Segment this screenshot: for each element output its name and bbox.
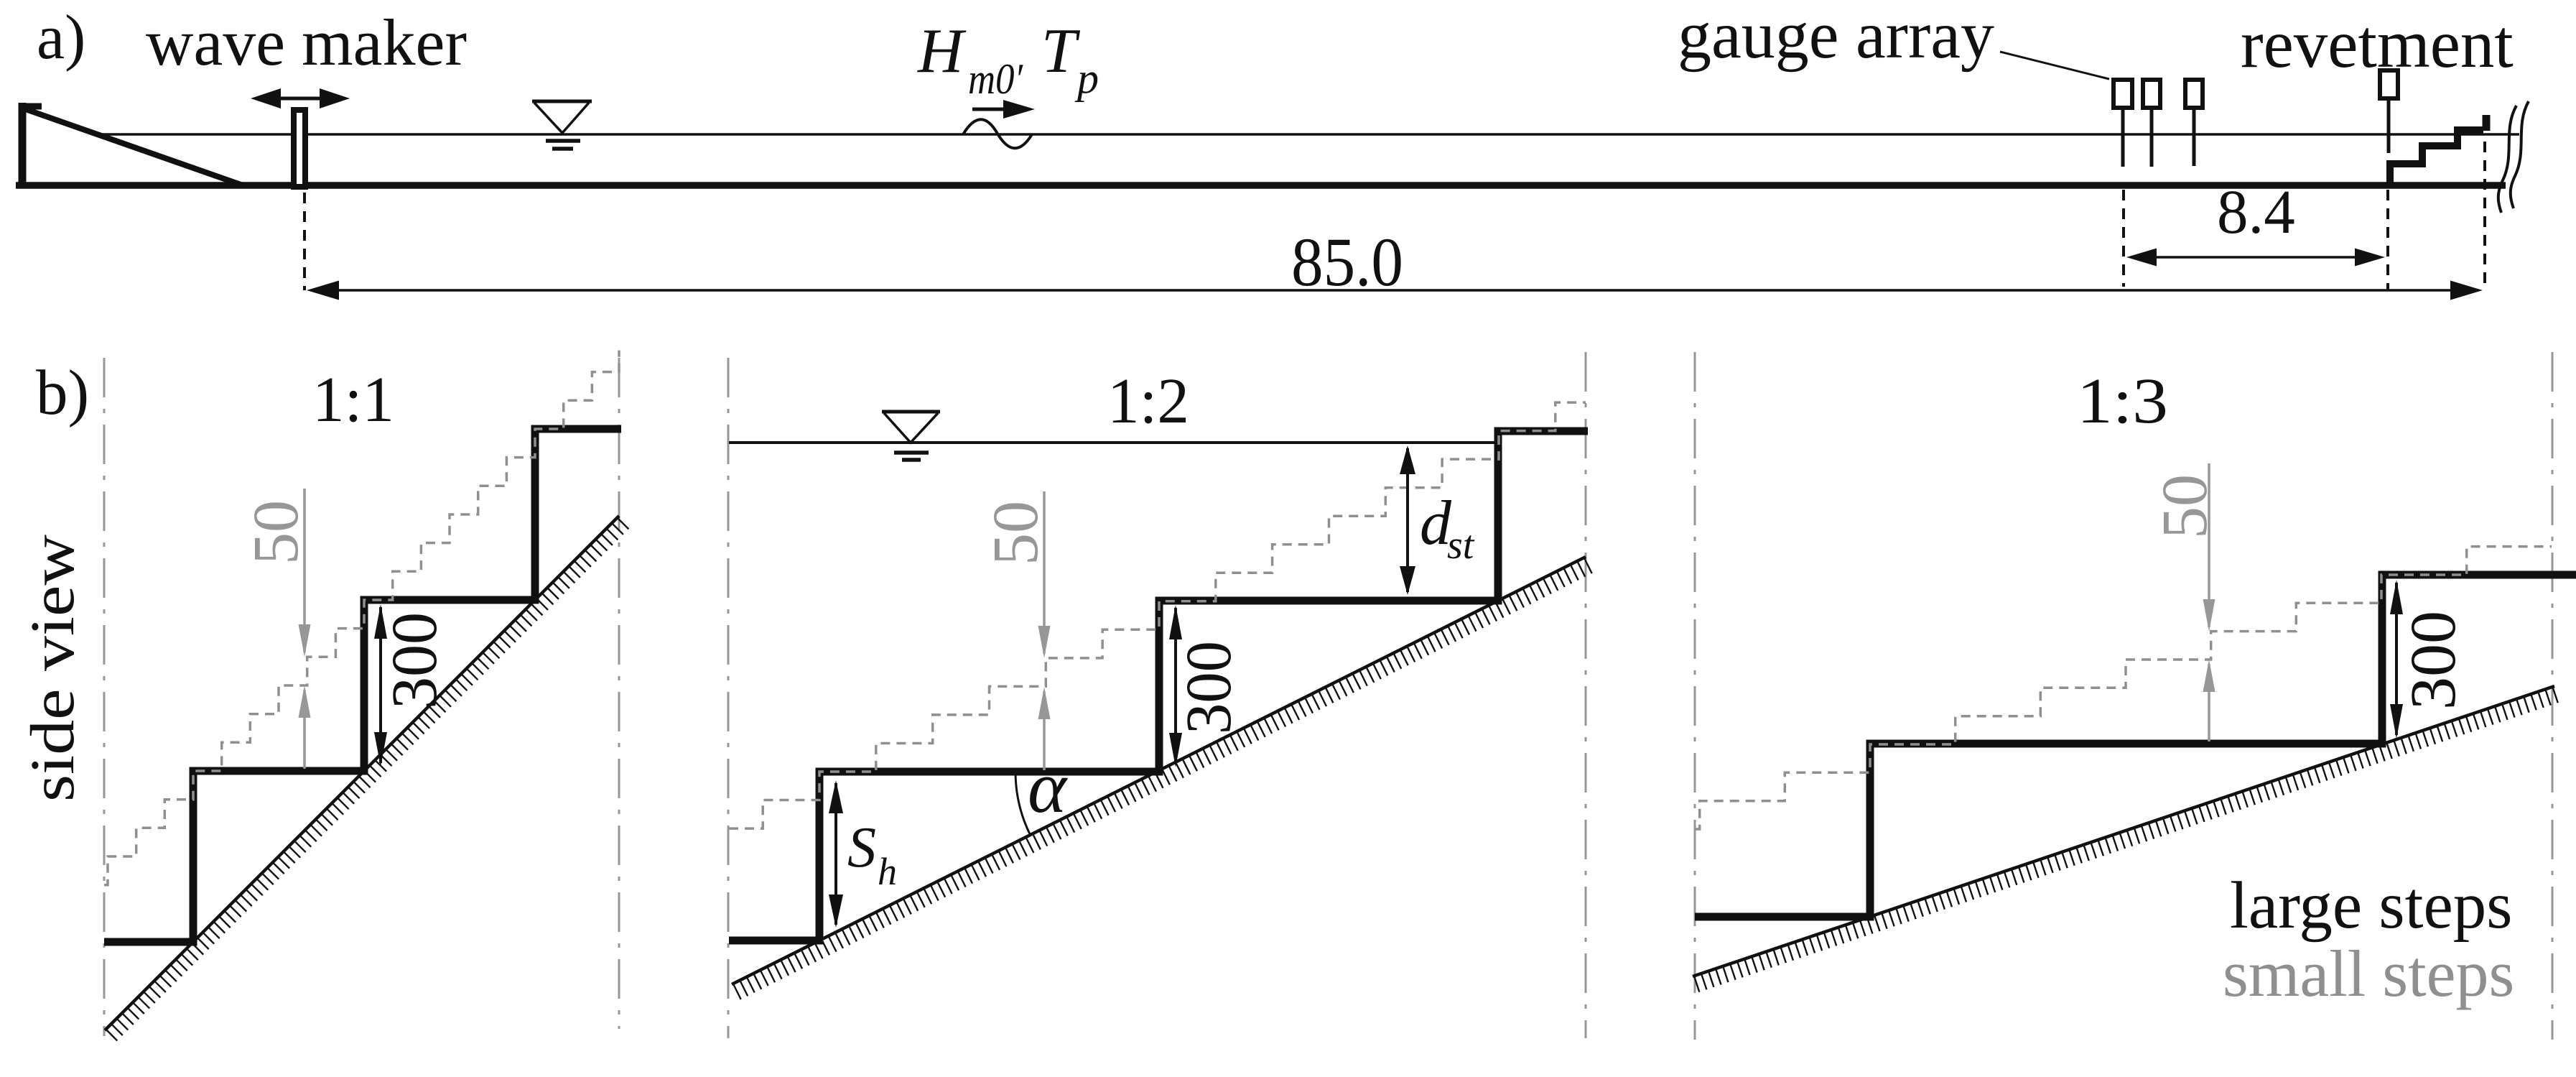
svg-text:300: 300 — [2398, 611, 2469, 710]
svg-text:300: 300 — [379, 612, 450, 709]
svg-text:wave maker: wave maker — [146, 6, 467, 79]
svg-text:gauge array: gauge array — [1678, 0, 1994, 73]
svg-text:T: T — [1041, 17, 1081, 86]
svg-text:a): a) — [37, 3, 85, 73]
svg-text:8.4: 8.4 — [2217, 177, 2295, 246]
svg-text:1:2: 1:2 — [1107, 366, 1189, 437]
svg-text:st: st — [1447, 523, 1475, 568]
svg-text:50: 50 — [980, 501, 1051, 565]
svg-text:300: 300 — [1173, 641, 1245, 734]
svg-text:m0′: m0′ — [968, 55, 1023, 103]
svg-text:50: 50 — [241, 500, 312, 565]
svg-text:H: H — [917, 17, 967, 86]
svg-text:S: S — [847, 816, 876, 879]
svg-text:h: h — [878, 850, 897, 893]
svg-text:revetment: revetment — [2241, 6, 2514, 82]
svg-text:50: 50 — [2149, 474, 2221, 539]
svg-text:side view: side view — [17, 535, 87, 802]
svg-text:large steps: large steps — [2230, 869, 2512, 943]
svg-text:b): b) — [36, 358, 89, 428]
svg-text:α: α — [1028, 746, 1068, 828]
svg-text:p: p — [1074, 55, 1099, 102]
svg-text:85.0: 85.0 — [1291, 223, 1403, 300]
svg-text:1:1: 1:1 — [312, 364, 394, 435]
svg-text:1:3: 1:3 — [2077, 366, 2168, 437]
svg-text:small steps: small steps — [2223, 937, 2514, 1010]
